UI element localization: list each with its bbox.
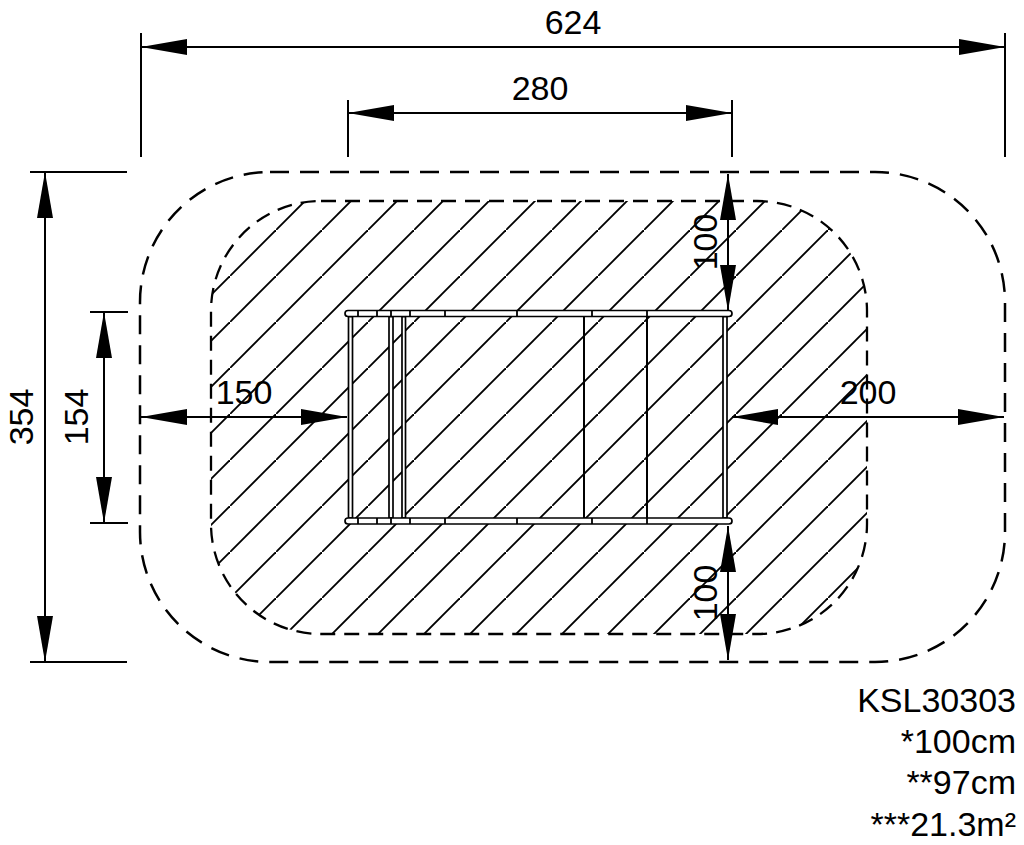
arrowhead-up-icon bbox=[37, 172, 53, 218]
technical-drawing-page: 624 280 354 154 150 200 bbox=[0, 0, 1024, 845]
product-info-block: KSL30303 *100cm **97cm ***21.3m² bbox=[857, 681, 1016, 843]
note-fall-height: *100cm bbox=[901, 722, 1016, 760]
equipment-inner-wall-a bbox=[389, 317, 393, 519]
note-safety-area: ***21.3m² bbox=[870, 805, 1016, 843]
dim-overall-width: 624 bbox=[141, 3, 1005, 157]
equipment-left-wall bbox=[349, 317, 353, 519]
dim-label-inner-depth: 154 bbox=[57, 389, 95, 446]
equipment-right-wall bbox=[723, 317, 727, 519]
dim-label-inner-width: 280 bbox=[512, 69, 569, 107]
arrowhead-right-icon bbox=[958, 409, 1004, 425]
arrowhead-up-icon bbox=[96, 312, 112, 358]
arrowhead-down-icon bbox=[96, 477, 112, 523]
equipment-inner-wall-b bbox=[402, 317, 406, 519]
dim-label-right-clearance: 200 bbox=[840, 373, 897, 411]
dim-label-left-clearance: 150 bbox=[216, 373, 273, 411]
equipment-top-rail bbox=[345, 311, 732, 317]
dim-label-overall-width: 624 bbox=[545, 3, 602, 41]
dim-inner-width: 280 bbox=[348, 69, 732, 157]
dim-label-bottom-clearance: 100 bbox=[686, 565, 724, 622]
arrowhead-left-icon bbox=[141, 409, 187, 425]
dim-label-top-clearance: 100 bbox=[686, 214, 724, 271]
dim-inner-depth: 154 bbox=[57, 312, 128, 523]
arrowhead-left-icon bbox=[141, 39, 187, 55]
dim-label-overall-depth: 354 bbox=[2, 389, 40, 446]
equipment-bottom-rail bbox=[345, 518, 732, 524]
arrowhead-left-icon bbox=[348, 105, 394, 121]
product-code: KSL30303 bbox=[857, 681, 1016, 719]
arrowhead-down-icon bbox=[37, 616, 53, 662]
arrowhead-right-icon bbox=[959, 39, 1005, 55]
plan-drawing: 624 280 354 154 150 200 bbox=[0, 0, 1024, 845]
arrowhead-right-icon bbox=[686, 105, 732, 121]
note-platform-height: **97cm bbox=[906, 763, 1016, 801]
arrowhead-up-icon bbox=[720, 174, 736, 220]
